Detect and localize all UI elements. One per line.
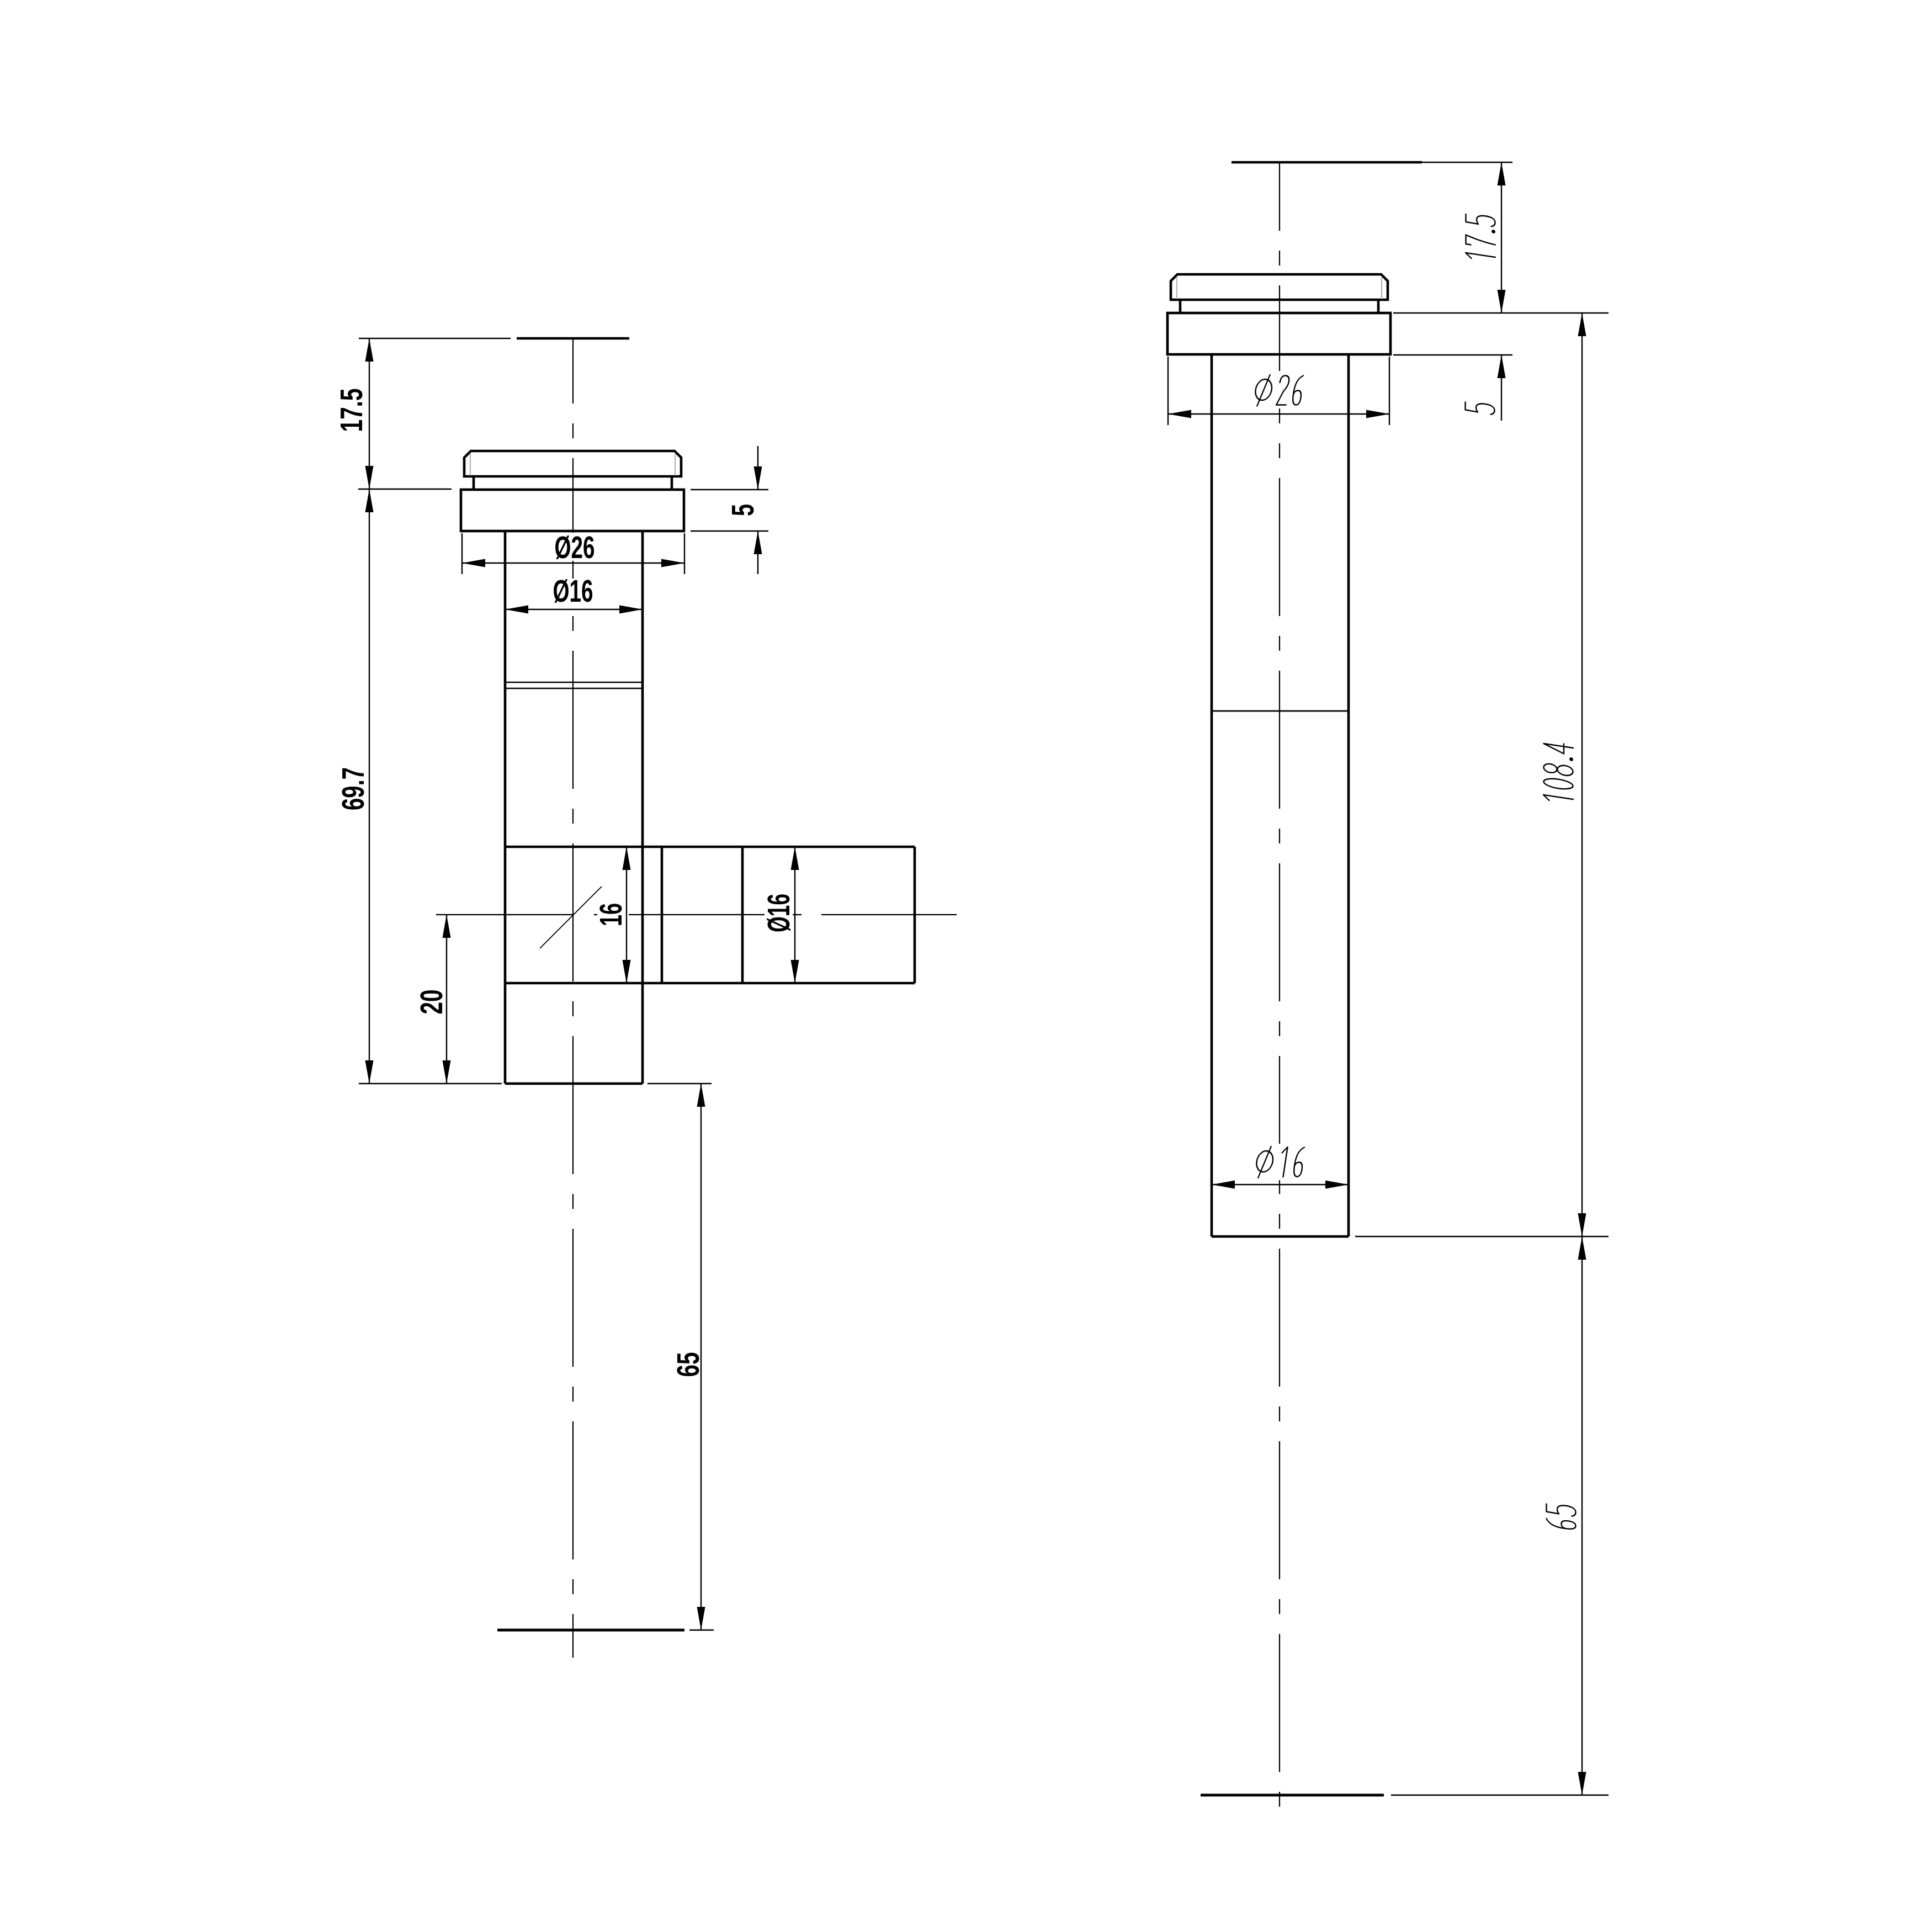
svg-text:69.7: 69.7: [336, 767, 371, 810]
svg-text:65: 65: [671, 1352, 706, 1377]
svg-text:5: 5: [725, 504, 761, 516]
svg-text:Ø16: Ø16: [761, 894, 797, 932]
svg-text:17.5: 17.5: [334, 389, 369, 432]
svg-text:16: 16: [593, 903, 629, 926]
svg-text:Ø16: Ø16: [553, 574, 593, 609]
svg-text:Ø26: Ø26: [555, 530, 595, 565]
svg-text:20: 20: [414, 990, 449, 1015]
